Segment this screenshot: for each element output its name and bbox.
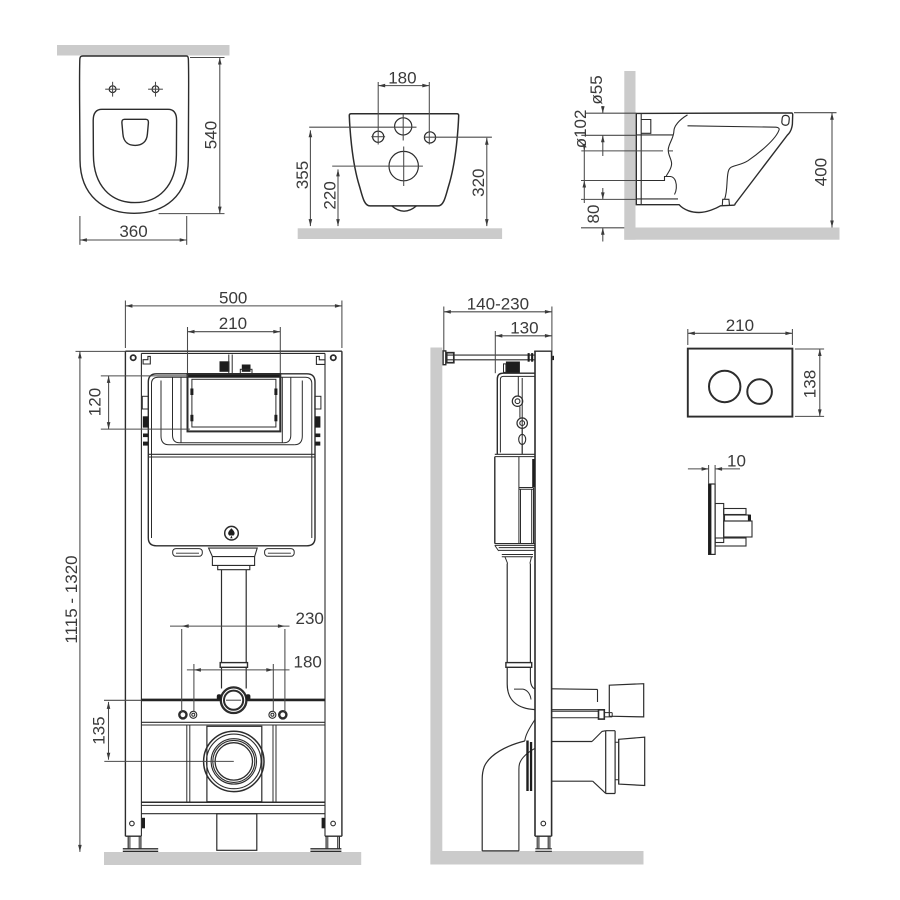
svg-text:400: 400 [811,158,830,186]
svg-text:210: 210 [726,316,754,335]
svg-text:210: 210 [219,314,247,333]
svg-text:220: 220 [320,181,339,209]
svg-text:1115 - 1320: 1115 - 1320 [62,555,81,643]
svg-text:130: 130 [510,318,538,337]
svg-text:10: 10 [727,451,746,470]
svg-text:320: 320 [469,169,488,197]
svg-text:540: 540 [202,121,221,149]
svg-text:ø102: ø102 [571,110,590,149]
svg-text:138: 138 [800,370,819,398]
svg-text:80: 80 [584,205,603,224]
svg-text:355: 355 [293,161,312,189]
svg-text:360: 360 [119,222,147,241]
svg-text:500: 500 [219,289,247,308]
svg-text:180: 180 [388,68,416,87]
svg-text:140-230: 140-230 [467,294,529,313]
svg-text:ø55: ø55 [587,75,606,104]
svg-text:180: 180 [294,652,322,671]
svg-text:230: 230 [296,609,324,628]
svg-text:120: 120 [85,388,104,416]
svg-text:135: 135 [90,716,109,744]
